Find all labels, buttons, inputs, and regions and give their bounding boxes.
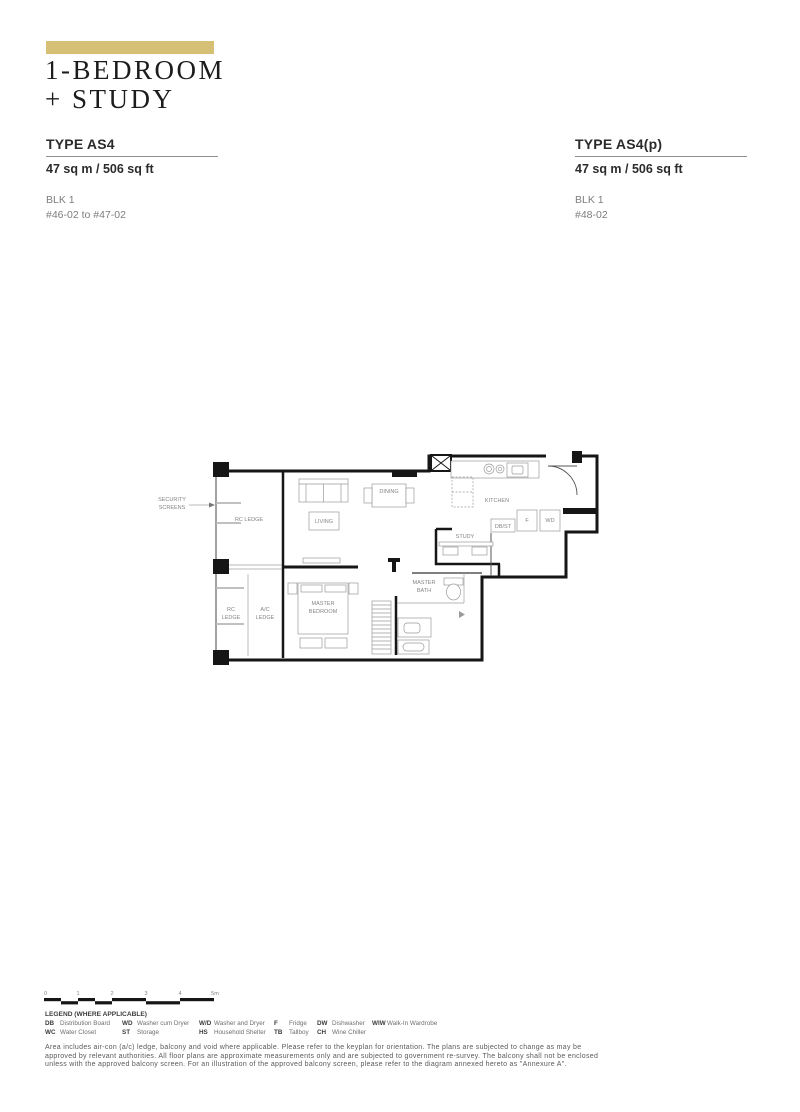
legend-item-empty (372, 1029, 515, 1037)
legend-item: WIWWalk-In Wardrobe (372, 1020, 515, 1028)
security-screens-arrowhead (209, 503, 215, 508)
dining-set (364, 484, 414, 507)
label-study: STUDY (456, 534, 475, 540)
unit-area-text: 47 sq m / 506 sq ft (46, 162, 218, 176)
label-living: LIVING (315, 519, 333, 525)
label-wd: WD (545, 518, 554, 524)
scale-tick: 3 (144, 991, 147, 997)
nightstand (288, 583, 297, 594)
entrance-door-arc (548, 466, 577, 495)
label-master-bath: MASTER (413, 580, 436, 586)
bed (288, 583, 358, 648)
legend-title: LEGEND (WHERE APPLICABLE) (45, 1011, 515, 1018)
scale-tick: 0 (44, 991, 47, 997)
unit-area-text: 47 sq m / 506 sq ft (575, 162, 747, 176)
legend-item: WDWasher cum Dryer (122, 1020, 199, 1028)
toilet (444, 578, 463, 600)
tv-console (303, 558, 340, 563)
disclaimer: Area includes air-con (a/c) ledge, balco… (45, 1044, 755, 1070)
plan-furniture (288, 461, 560, 654)
floorplan-drawing: SECURITY SCREENS RC LEDGE LIVING DINING … (150, 440, 620, 680)
label-rc-ledge-top: RC LEDGE (235, 517, 263, 523)
unit-stack-text: #48-02 (575, 208, 747, 223)
unit-block-text: BLK 1 (575, 193, 747, 208)
label-kitchen: KITCHEN (485, 498, 509, 504)
unit-stack-text: #46-02 to #47-02 (46, 208, 218, 223)
vanity-sink (398, 618, 431, 637)
disclaimer-line: approved by relevant authorities. All fl… (45, 1053, 755, 1062)
unit-type-heading: TYPE AS4 (46, 136, 218, 152)
scale-bar: 0 1 2 3 4 5m (44, 989, 224, 1007)
legend-item: DWDishwasher (317, 1020, 372, 1028)
label-rc-ledge-bottom: RC (227, 607, 235, 613)
shower-marker (459, 611, 465, 618)
label-ac-ledge: A/C (260, 607, 269, 613)
legend: LEGEND (WHERE APPLICABLE) DBDistribution… (45, 1011, 515, 1037)
wall-pier (563, 508, 598, 514)
floorplan-brochure-page: 1-BEDROOM + STUDY TYPE AS4 47 sq m / 506… (0, 0, 800, 1112)
heading-divider (575, 156, 747, 157)
wardrobe (372, 601, 391, 654)
wall-notch (392, 470, 417, 477)
label-rc-ledge-bottom: LEDGE (222, 615, 241, 621)
bath-door-leaf (388, 558, 400, 562)
unit-spec-as4: TYPE AS4 47 sq m / 506 sq ft BLK 1 #46-0… (46, 136, 218, 223)
fridge-provision (452, 477, 473, 507)
study-desk (439, 542, 493, 555)
scale-tick: 4 (178, 991, 181, 997)
door-jamb-stub (572, 451, 582, 463)
legend-item: FFridge (274, 1020, 317, 1028)
unit-type-heading: TYPE AS4(p) (575, 136, 747, 152)
scale-tick: 2 (110, 991, 113, 997)
nightstand (349, 583, 358, 594)
legend-item: HSHousehold Shelter (199, 1029, 274, 1037)
service-shaft (431, 455, 451, 471)
label-dining: DINING (379, 489, 398, 495)
kitchen-counter (451, 461, 539, 478)
label-ac-ledge: LEDGE (256, 615, 275, 621)
disclaimer-line: unless with the approved balcony screen.… (45, 1061, 755, 1070)
page-title: 1-BEDROOM + STUDY (45, 56, 225, 114)
label-security-screens: SCREENS (159, 505, 186, 511)
legend-item: TBTallboy (274, 1029, 317, 1037)
gold-accent-bar (46, 41, 214, 54)
legend-item: DBDistribution Board (45, 1020, 122, 1028)
plan-labels: SECURITY SCREENS RC LEDGE LIVING DINING … (158, 489, 555, 621)
legend-grid: DBDistribution Board WDWasher cum Dryer … (45, 1020, 515, 1037)
label-master-bath: BATH (417, 588, 431, 594)
label-master-bedroom: BEDROOM (309, 609, 338, 615)
label-master-bedroom: MASTER (312, 601, 335, 607)
page-title-line2: + STUDY (45, 85, 225, 114)
unit-spec-as4p: TYPE AS4(p) 47 sq m / 506 sq ft BLK 1 #4… (575, 136, 747, 223)
bathtub (398, 640, 429, 654)
unit-block-text: BLK 1 (46, 193, 218, 208)
scale-tick: 1 (76, 991, 79, 997)
scale-tick: 5m (211, 991, 219, 997)
legend-item: CHWine Chiller (317, 1029, 372, 1037)
legend-item: STStorage (122, 1029, 199, 1037)
label-db-st: DB/ST (495, 524, 512, 530)
sofa (299, 479, 348, 502)
legend-item: WCWater Closet (45, 1029, 122, 1037)
bath-door-leaf (392, 562, 396, 572)
page-title-line1: 1-BEDROOM (45, 56, 225, 85)
heading-divider (46, 156, 218, 157)
legend-item: W/DWasher and Dryer (199, 1020, 274, 1028)
label-security-screens: SECURITY (158, 497, 186, 503)
disclaimer-line: Area includes air-con (a/c) ledge, balco… (45, 1044, 755, 1053)
